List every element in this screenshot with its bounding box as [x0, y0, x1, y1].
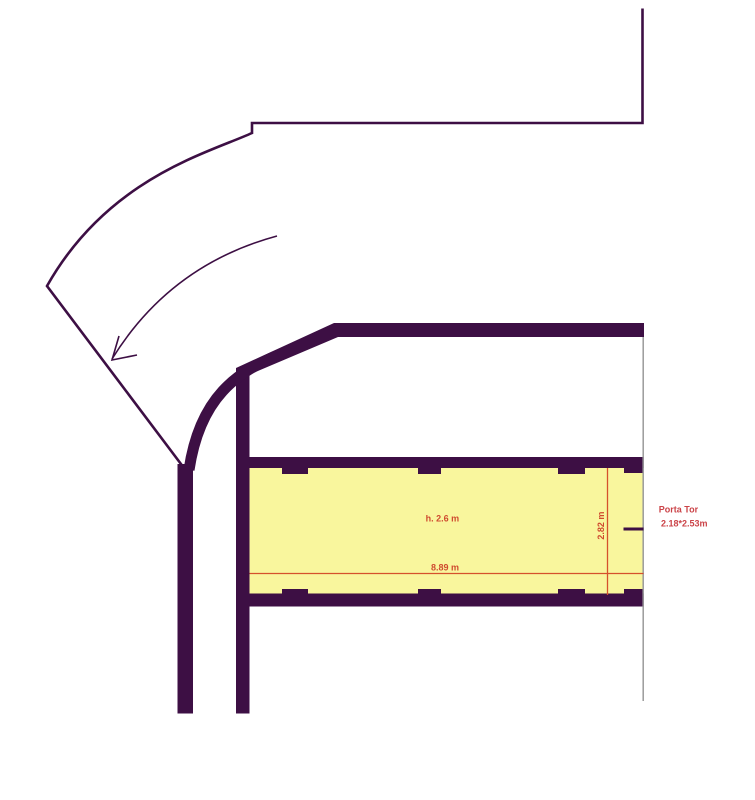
svg-text:Porta Tor: Porta Tor — [659, 504, 699, 514]
svg-text:2.82 m: 2.82 m — [596, 512, 606, 540]
svg-text:8.89 m: 8.89 m — [431, 563, 459, 573]
svg-text:2.18*2.53m: 2.18*2.53m — [661, 518, 708, 528]
svg-text:h. 2.6 m: h. 2.6 m — [426, 514, 460, 524]
